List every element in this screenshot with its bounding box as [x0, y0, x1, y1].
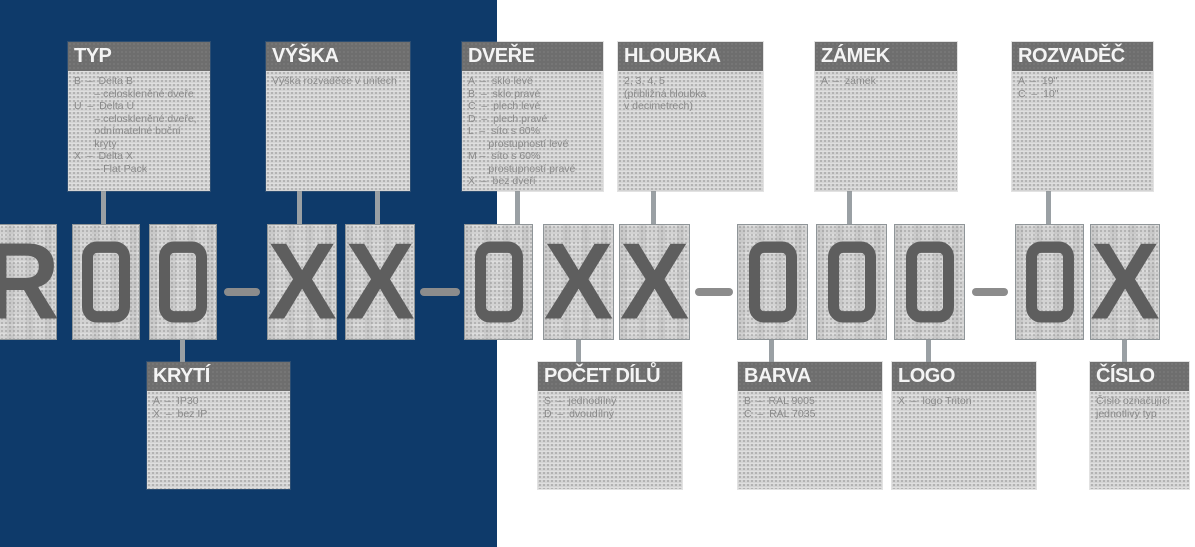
info-box-vyska: VÝŠKA Výška rozvaděče v unitech: [266, 42, 410, 191]
code-char-box-12: [1015, 224, 1084, 340]
code-char-box-9: [737, 224, 808, 340]
code-char-box-1: R: [0, 224, 57, 340]
code-char-box-7: X: [543, 224, 614, 340]
info-box-rozvadec-title: ROZVADĚČ: [1012, 42, 1153, 71]
code-char-box-5: X: [345, 224, 415, 340]
connector-zamek: [847, 191, 852, 225]
info-box-vyska-title: VÝŠKA: [266, 42, 410, 71]
info-box-pocet-dilu-body: S – jednodílný D – dvoudílný: [538, 391, 682, 489]
info-box-logo-title: LOGO: [892, 362, 1036, 391]
info-box-zamek-body: A – zámek: [815, 71, 957, 191]
code-char-13: X: [1090, 228, 1159, 336]
connector-typ: [101, 191, 106, 225]
info-box-typ-title: TYP: [68, 42, 210, 71]
info-box-typ: TYP B – Delta B – celoskleněné dveře U –…: [68, 42, 210, 191]
info-box-zamek-title: ZÁMEK: [815, 42, 957, 71]
code-char-box-4: X: [267, 224, 337, 340]
connector-pocet-dilu: [576, 340, 581, 363]
info-box-hloubka-body: 2, 3, 4, 5 (přibližná hloubka v decimetr…: [618, 71, 763, 191]
code-char-box-11: [894, 224, 965, 340]
info-box-zamek: ZÁMEK A – zámek: [815, 42, 957, 191]
connector-logo: [926, 340, 931, 363]
code-char-4: X: [267, 228, 336, 336]
code-char-11: [906, 241, 954, 322]
connector-barva: [769, 340, 774, 363]
info-box-pocet-dilu-title: POČET DÍLŮ: [538, 362, 682, 391]
code-char-6: [475, 241, 523, 322]
code-char-box-6: [464, 224, 533, 340]
connector-vyska-right: [375, 191, 380, 225]
code-char-10: [828, 241, 876, 322]
code-char-box-13: X: [1090, 224, 1160, 340]
code-separator-dash-2: [420, 288, 460, 296]
code-separator-dash-4: [972, 288, 1008, 296]
code-char-1: R: [0, 228, 60, 336]
info-box-dvere-title: DVEŘE: [462, 42, 603, 71]
code-char-box-8: X: [619, 224, 690, 340]
info-box-barva: BARVA B – RAL 9005 C – RAL 7035: [738, 362, 882, 489]
info-box-logo-body: X – logo Triton: [892, 391, 1036, 489]
code-char-3: [159, 241, 207, 322]
code-separator-dash-3: [695, 288, 733, 296]
info-box-dvere: DVEŘE A – sklo levé B – sklo pravé C – p…: [462, 42, 603, 191]
info-box-hloubka: HLOUBKA 2, 3, 4, 5 (přibližná hloubka v …: [618, 42, 763, 191]
info-box-barva-body: B – RAL 9005 C – RAL 7035: [738, 391, 882, 489]
connector-cislo: [1122, 340, 1127, 363]
code-char-7: X: [544, 228, 613, 336]
code-separator-dash-1: [224, 288, 260, 296]
info-box-dvere-body: A – sklo levé B – sklo pravé C – plech l…: [462, 71, 603, 191]
connector-dvere: [515, 191, 520, 225]
connector-rozvadec: [1046, 191, 1051, 225]
info-box-hloubka-title: HLOUBKA: [618, 42, 763, 71]
code-char-box-3: [149, 224, 217, 340]
code-char-5: X: [345, 228, 414, 336]
info-box-logo: LOGO X – logo Triton: [892, 362, 1036, 489]
info-box-pocet-dilu: POČET DÍLŮ S – jednodílný D – dvoudílný: [538, 362, 682, 489]
code-char-9: [749, 241, 797, 322]
info-box-rozvadec-body: A – 19" C – 10": [1012, 71, 1153, 191]
connector-kryti: [180, 340, 185, 363]
code-char-2: [82, 241, 130, 322]
code-char-box-10: [816, 224, 887, 340]
info-box-kryti-body: A – IP30 X – bez IP: [147, 391, 290, 489]
info-box-kryti-title: KRYTÍ: [147, 362, 290, 391]
product-code-diagram: TYP B – Delta B – celoskleněné dveře U –…: [0, 0, 1195, 547]
info-box-cislo-title: ČÍSLO: [1090, 362, 1189, 391]
code-char-12: [1026, 241, 1074, 322]
connector-hloubka: [651, 191, 656, 225]
info-box-cislo: ČÍSLO Číslo označující jednotlivý typ: [1090, 362, 1189, 489]
info-box-cislo-body: Číslo označující jednotlivý typ: [1090, 391, 1189, 489]
code-char-box-2: [72, 224, 140, 340]
code-char-8: X: [620, 228, 689, 336]
info-box-barva-title: BARVA: [738, 362, 882, 391]
info-box-rozvadec: ROZVADĚČ A – 19" C – 10": [1012, 42, 1153, 191]
info-box-vyska-body: Výška rozvaděče v unitech: [266, 71, 410, 191]
info-box-typ-body: B – Delta B – celoskleněné dveře U – Del…: [68, 71, 210, 191]
info-box-kryti: KRYTÍ A – IP30 X – bez IP: [147, 362, 290, 489]
connector-vyska-left: [297, 191, 302, 225]
